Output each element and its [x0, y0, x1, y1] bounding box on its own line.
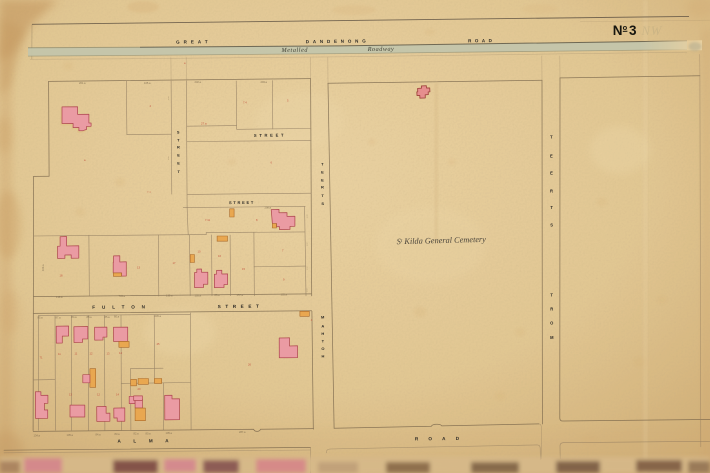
svg-text:293.a: 293.a	[261, 80, 268, 84]
svg-text:H: H	[322, 354, 325, 359]
svg-text:12: 12	[90, 352, 93, 356]
svg-text:Roadway: Roadway	[367, 46, 394, 53]
svg-text:E: E	[177, 152, 180, 157]
svg-text:105.a: 105.a	[281, 292, 288, 296]
svg-text:E: E	[177, 161, 180, 166]
svg-text:R: R	[550, 189, 553, 194]
svg-text:298.a: 298.a	[265, 205, 272, 209]
svg-text:GREAT: GREAT	[176, 39, 211, 44]
svg-text:743.a: 743.a	[119, 294, 126, 298]
svg-text:16: 16	[218, 254, 221, 258]
svg-text:o: o	[623, 23, 628, 32]
svg-text:83.a: 83.a	[115, 432, 121, 436]
svg-text:ALMA: ALMA	[117, 438, 181, 444]
svg-text:7.11: 7.11	[205, 218, 211, 222]
svg-text:105.a: 105.a	[144, 81, 151, 85]
svg-text:85.a: 85.a	[38, 316, 44, 320]
svg-text:O: O	[321, 346, 324, 351]
svg-text:14: 14	[119, 351, 122, 355]
svg-text:84.a: 84.a	[72, 315, 78, 319]
svg-text:14: 14	[116, 393, 119, 397]
svg-text:S: S	[177, 130, 180, 135]
svg-text:87.a: 87.a	[56, 315, 62, 319]
svg-text:R: R	[321, 185, 324, 190]
svg-text:138.a: 138.a	[56, 295, 63, 299]
svg-text:80.a: 80.a	[146, 432, 152, 436]
svg-text:287.a: 287.a	[239, 430, 246, 434]
svg-text:105.a: 105.a	[195, 293, 202, 297]
svg-text:M: M	[550, 335, 554, 340]
svg-text:80.a: 80.a	[114, 315, 120, 319]
svg-text:NW: NW	[641, 24, 663, 38]
svg-text:STREET: STREET	[218, 304, 264, 309]
svg-text:139.a: 139.a	[166, 294, 173, 298]
svg-text:S: S	[321, 201, 324, 206]
svg-text:N: N	[613, 23, 623, 38]
svg-text:E: E	[321, 170, 324, 175]
svg-text:STREET: STREET	[254, 133, 286, 138]
svg-text:STREET: STREET	[229, 200, 255, 205]
svg-text:45: 45	[157, 342, 160, 346]
svg-text:13: 13	[69, 393, 72, 397]
svg-text:17: 17	[173, 261, 176, 265]
svg-text:71: 71	[40, 356, 43, 360]
svg-text:88.a: 88.a	[87, 315, 93, 319]
svg-text:134.a: 134.a	[34, 433, 41, 437]
svg-text:E: E	[550, 153, 553, 158]
svg-text:ROAD: ROAD	[468, 38, 495, 43]
svg-text:7.4: 7.4	[147, 190, 151, 194]
svg-text:H: H	[321, 331, 324, 336]
svg-text:S: S	[550, 222, 553, 227]
svg-text:3: 3	[629, 23, 637, 38]
svg-text:13: 13	[107, 352, 110, 356]
svg-text:85.a: 85.a	[105, 315, 111, 319]
svg-text:105.a: 105.a	[166, 431, 173, 435]
svg-text:82.a: 82.a	[134, 432, 140, 436]
svg-text:20: 20	[138, 387, 141, 391]
svg-text:15: 15	[242, 267, 245, 271]
svg-text:Metalled: Metalled	[280, 47, 308, 54]
svg-text:E: E	[550, 171, 553, 176]
svg-text:R: R	[550, 307, 553, 312]
svg-text:ROAD: ROAD	[415, 436, 469, 441]
svg-text:12: 12	[97, 393, 100, 397]
svg-text:18: 18	[60, 274, 63, 278]
svg-text:FULTON: FULTON	[92, 304, 152, 310]
svg-text:84.a: 84.a	[96, 432, 102, 436]
svg-text:7.4: 7.4	[243, 101, 247, 105]
svg-text:E: E	[321, 177, 324, 182]
svg-text:105.a: 105.a	[67, 433, 74, 437]
svg-text:157.a: 157.a	[237, 293, 244, 297]
svg-text:26: 26	[248, 363, 251, 367]
svg-text:DANDENONG: DANDENONG	[306, 38, 370, 44]
svg-text:A: A	[321, 323, 324, 328]
svg-text:245.a: 245.a	[155, 314, 162, 318]
svg-text:232.a: 232.a	[195, 80, 202, 84]
svg-text:201.a: 201.a	[79, 81, 86, 85]
svg-text:10: 10	[198, 250, 201, 254]
svg-text:85.a: 85.a	[215, 293, 221, 297]
svg-text:13: 13	[137, 266, 140, 270]
svg-text:103.a: 103.a	[41, 264, 45, 271]
svg-text:R: R	[177, 144, 180, 149]
svg-text:27.a: 27.a	[201, 122, 207, 126]
